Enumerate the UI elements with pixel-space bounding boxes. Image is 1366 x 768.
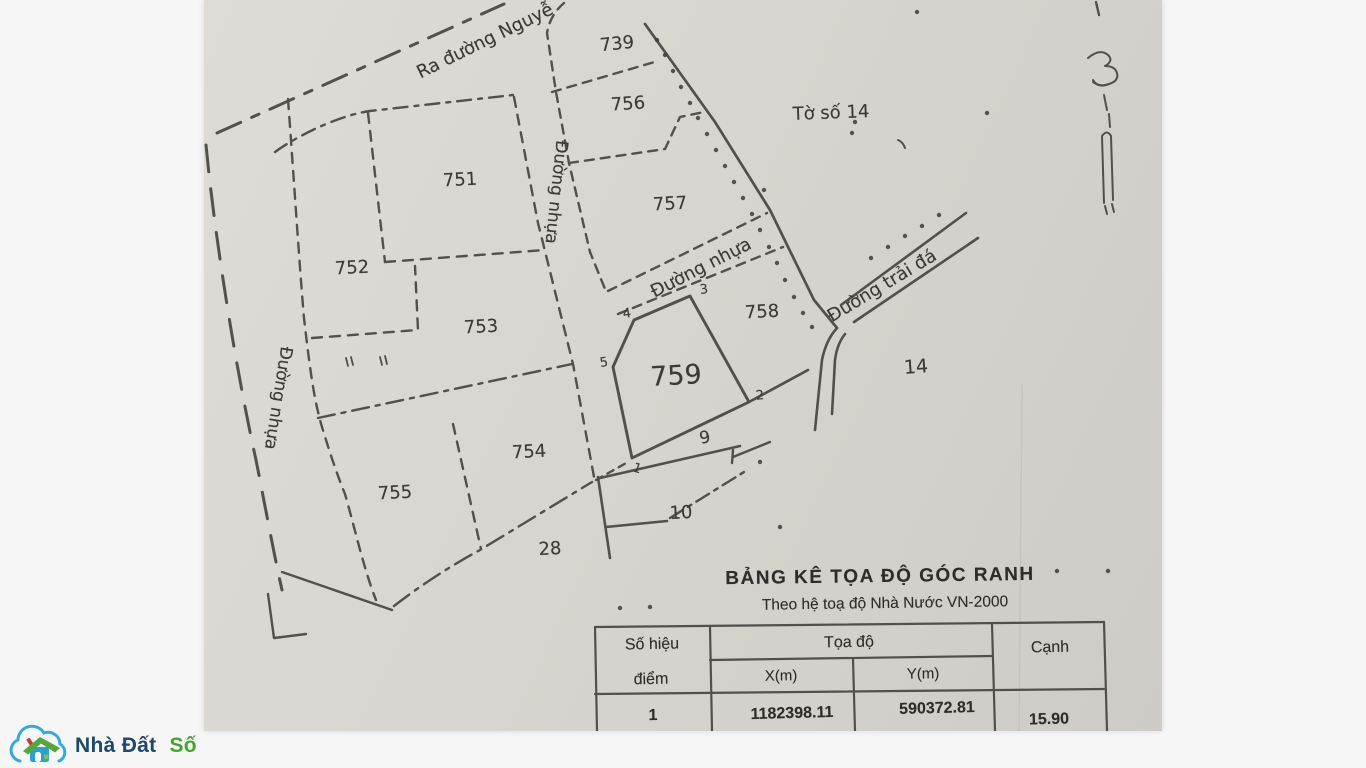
table-header-point-no-line1: Số hiệu — [625, 636, 680, 655]
table-header-y: Y(m) — [907, 665, 940, 683]
parcel-739-label: 739 — [599, 32, 635, 56]
table-row1-edge-value: 15.90 — [1029, 710, 1070, 729]
parcel-751-label: 751 — [442, 169, 477, 192]
table-header-edge: Cạnh — [1031, 639, 1070, 658]
parcel-756-label: 756 — [610, 92, 646, 115]
table-title: BẢNG KÊ TỌA ĐỘ GÓC RANH — [725, 564, 1035, 590]
road-line-left-inner — [288, 99, 376, 600]
parcel-757-label: 757 — [652, 193, 687, 216]
sheet-label: Tờ số 14 — [792, 101, 869, 125]
parcel-758-label: 758 — [744, 301, 779, 324]
brand-house-cloud-icon — [8, 724, 68, 768]
parcel-753-label: 753 — [463, 316, 498, 339]
parcel-752-label: 752 — [334, 257, 369, 280]
table-row1-y-value: 590372.81 — [899, 699, 975, 719]
parcel-755-label: 755 — [377, 482, 412, 505]
parcel-759-label: 759 — [649, 359, 702, 393]
brand-watermark: Nhà Đất Số — [8, 724, 197, 768]
edge-label-28: 28 — [538, 538, 562, 560]
adjacent-sheet-number: 14 — [903, 355, 929, 379]
table-row1-point-no: 1 — [648, 707, 657, 725]
table-header-point-no-line2: điểm — [634, 671, 669, 690]
screenshot-stage: Ra đường Nguyễ Đường nhựa Đường nhựa Đườ… — [0, 0, 1366, 768]
table-row1-x-value: 1182398.11 — [750, 704, 833, 724]
brand-name-green: Số — [169, 734, 196, 758]
parcel-754-label: 754 — [511, 441, 546, 464]
road-line-left-outer — [206, 145, 282, 590]
table-header-coords: Tọa độ — [824, 634, 874, 653]
table-header-x: X(m) — [765, 667, 798, 685]
edge-label-10: 10 — [669, 502, 693, 524]
point-2-label: 2 — [755, 388, 765, 404]
table-subtitle: Theo hệ toạ độ Nhà Nước VN-2000 — [762, 593, 1009, 614]
right-edge-symbol — [1088, 2, 1117, 214]
brand-name-dark: Nhà Đất — [75, 734, 156, 758]
road-line-nguyen — [217, 4, 504, 133]
cadastral-map-photo: Ra đường Nguyễ Đường nhựa Đường nhựa Đườ… — [204, 0, 1162, 731]
